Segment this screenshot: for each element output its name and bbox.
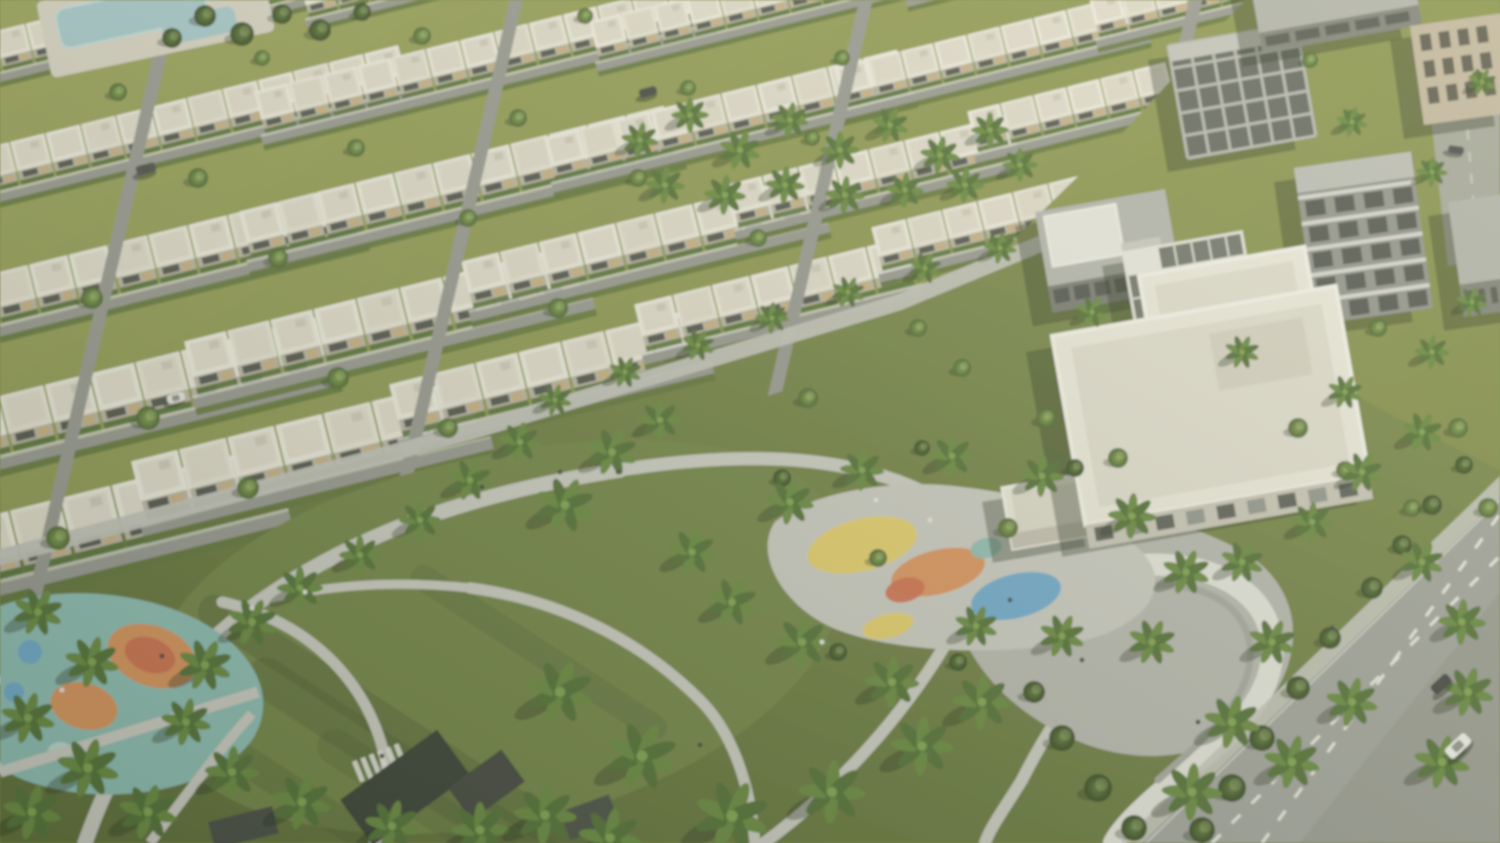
scene-svg xyxy=(0,0,1500,843)
light-overlay xyxy=(0,0,1500,843)
aerial-community-rendering xyxy=(0,0,1500,843)
